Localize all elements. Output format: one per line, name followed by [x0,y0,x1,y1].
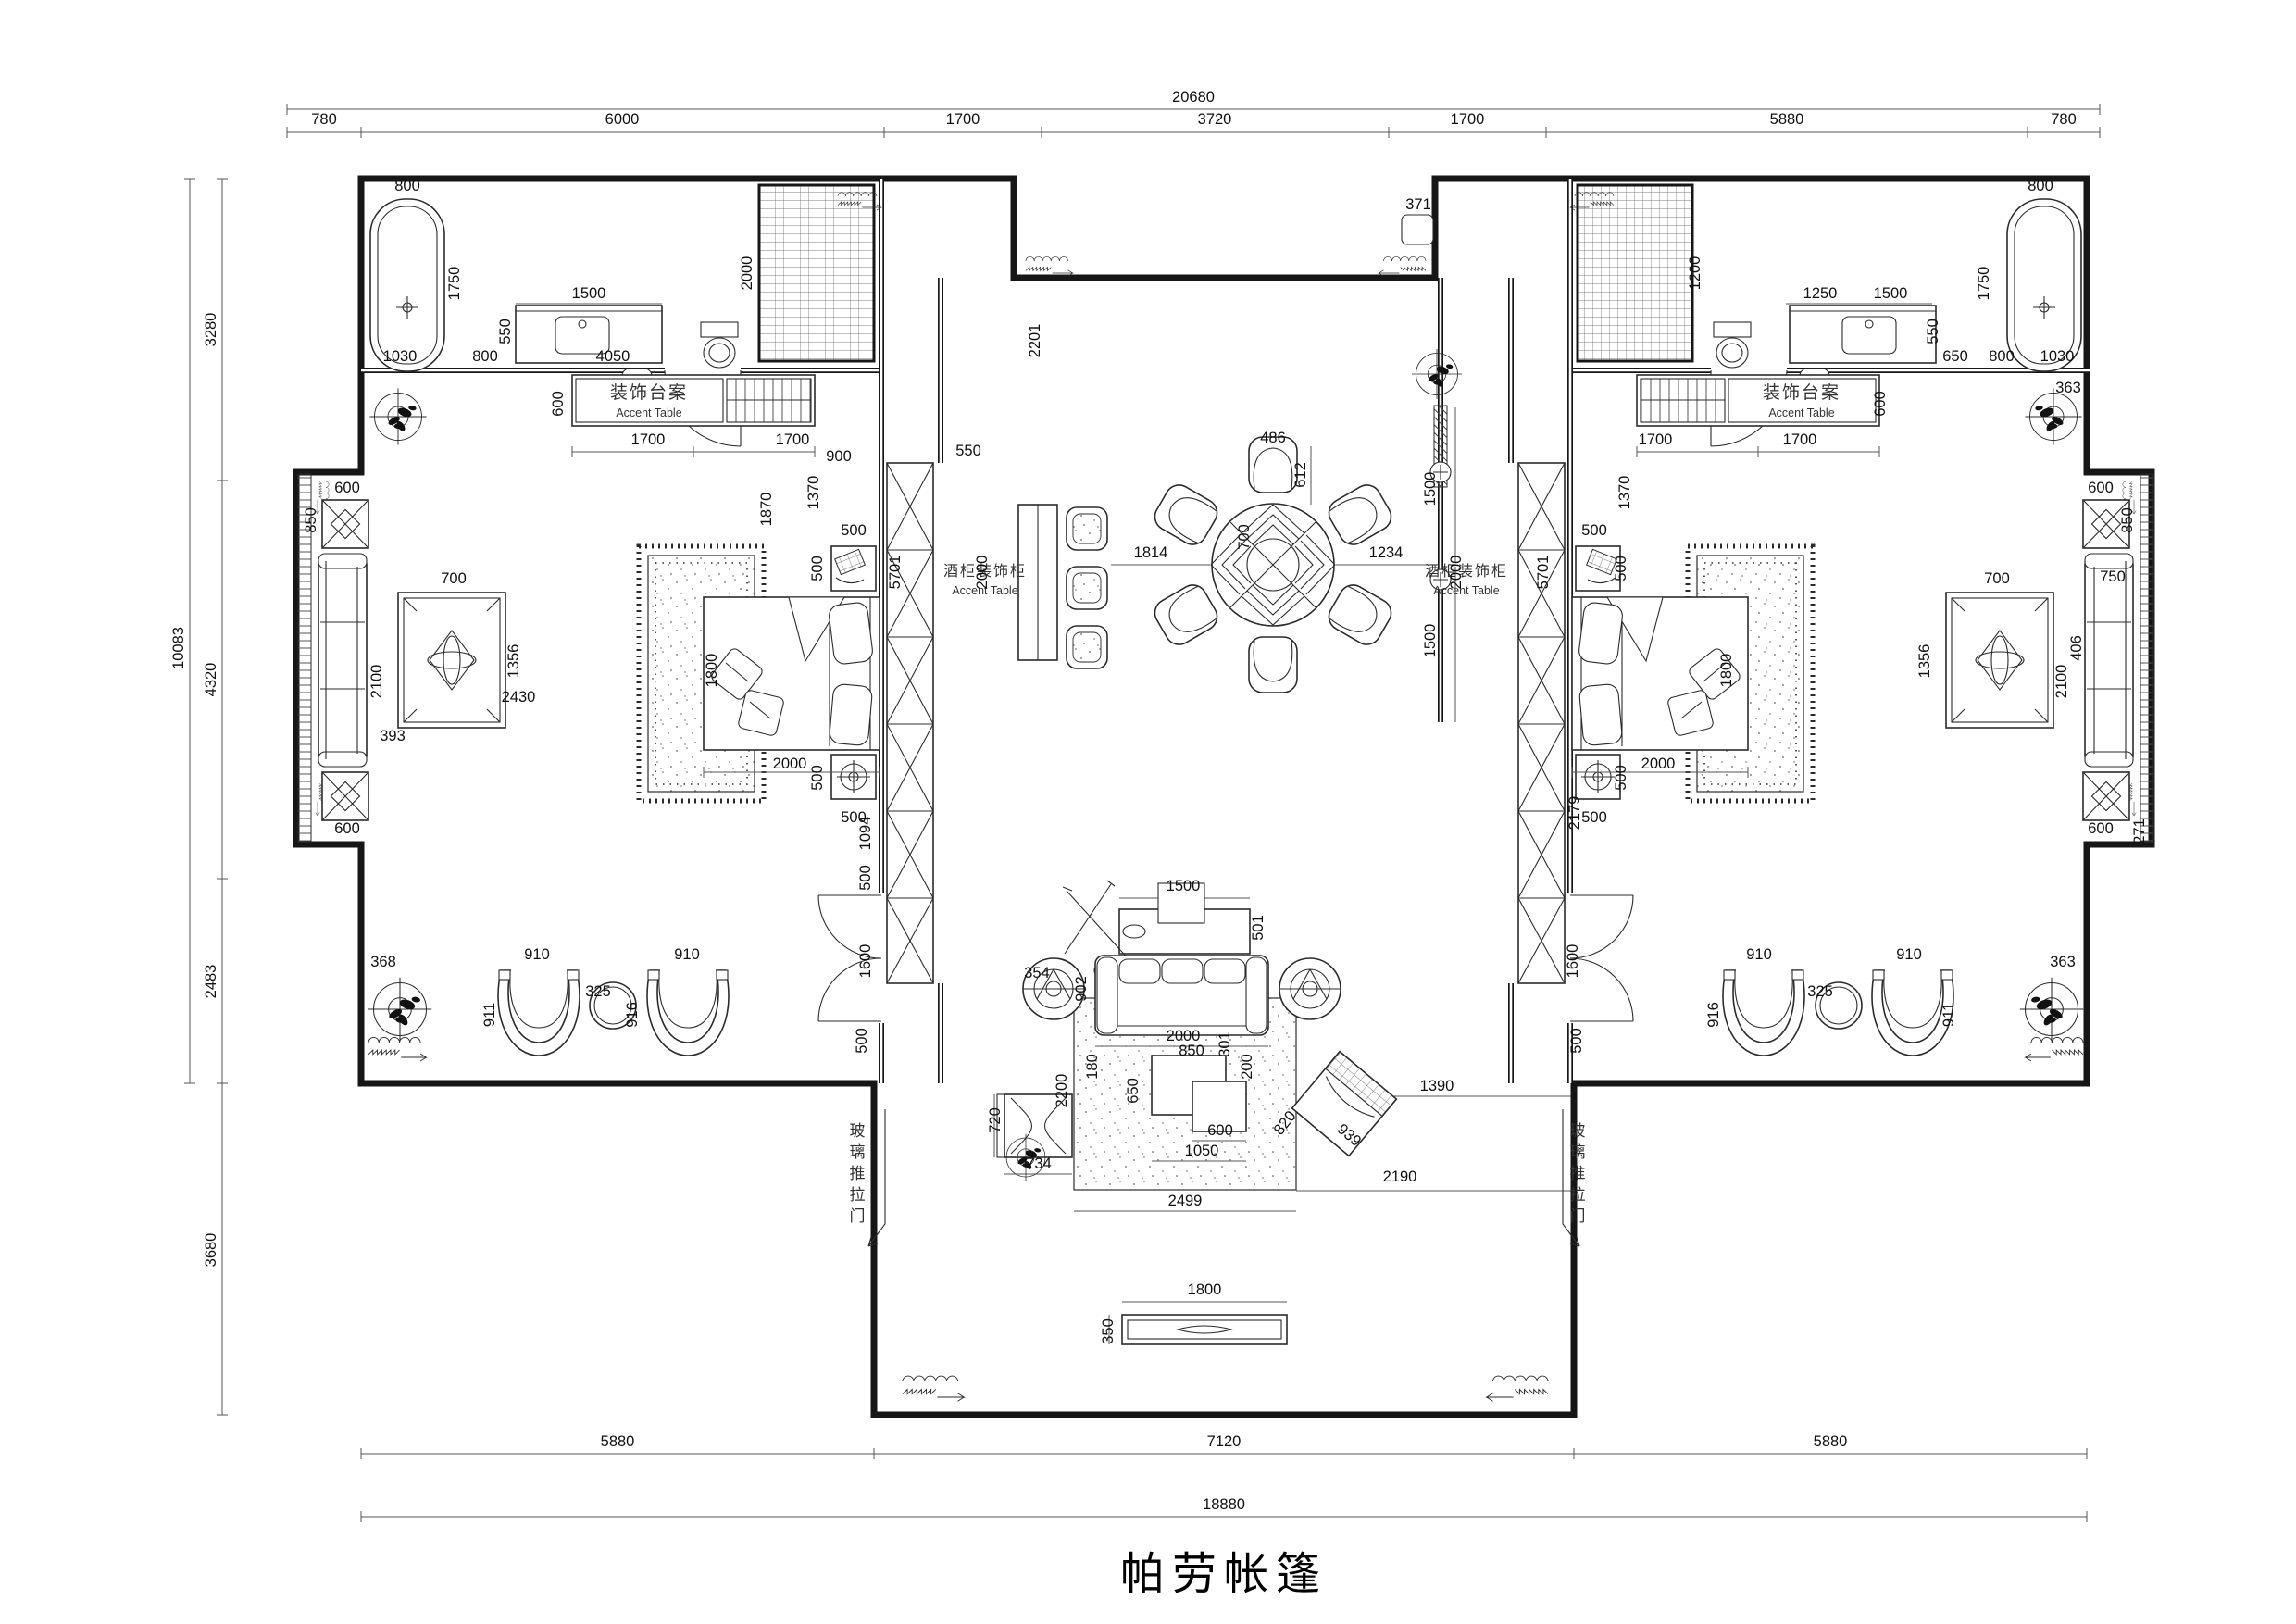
dim-label: 271 [2131,818,2148,844]
dim-label: 1700 [1639,431,1673,448]
dim-label: 350 [1100,1318,1117,1344]
dim-label: 600 [1872,391,1889,417]
small-stool [1402,215,1433,244]
dim-label: 1094 [857,817,874,851]
tv-console [1122,1315,1287,1344]
dim-label: 5880 [1814,1433,1848,1450]
dim-label: 1030 [2040,348,2075,365]
dim-label: 5701 [887,556,904,590]
left-suite [298,179,941,1083]
dim-label: 550 [955,443,981,459]
glass-door-right: 玻璃推拉门 [1563,1109,1585,1246]
dim-label: 1600 [1565,944,1581,979]
dim-label: 2483 [203,965,219,999]
dim-label: 1250 [1803,285,1838,302]
dim-label: 700 [441,570,467,587]
dim-label: 700 [1236,524,1253,550]
dim-label: 2200 [1054,1074,1070,1108]
dim-label: 4320 [203,663,219,697]
wine-cabinet-label-en: Accent Table [1433,584,1499,597]
dim-label: 5880 [601,1433,635,1450]
dim-label: 600 [2088,480,2114,496]
dim-label: 4050 [596,348,630,365]
dim-label: 1500 [1167,878,1201,894]
dim-label: 500 [809,765,826,791]
dim-label: 1356 [505,644,522,679]
dim-label: 910 [1746,946,1772,963]
dim-label: 650 [1125,1078,1142,1104]
dim-label: 800 [394,178,420,194]
dim-label: 500 [809,556,826,581]
drawing-title: 帕劳帐篷 [1120,1550,1328,1599]
dim-label: 2100 [2053,665,2070,699]
dim-label: 700 [1984,570,2010,587]
floor-plan-drawing: 玻璃推拉门 玻璃推拉门 装饰台案 Accent Table 装饰台案 Accen… [0,0,2296,1624]
dining-area [1018,215,1462,693]
dim-label: 1800 [704,654,720,688]
dim-label: 1700 [1783,431,1817,448]
dim-label: 363 [2055,380,2081,396]
right-suite [1511,179,2153,1083]
dim-label: 600 [334,820,360,837]
dining-table [1211,504,1335,626]
dim-label: 3680 [203,1233,219,1268]
dim-label: 2000 [974,556,991,590]
dim-label: 800 [1989,348,2015,365]
dim-label: 1600 [857,944,874,979]
dim-label: 916 [624,1002,641,1028]
dim-label: 910 [1896,946,1922,963]
dim-label: 2000 [773,756,807,772]
dim-label: 910 [674,946,700,963]
dim-label: 1700 [946,111,980,128]
dim-label: 1800 [1188,1281,1222,1298]
dim-label: 301 [1217,1031,1233,1057]
dim-label: 2201 [1027,324,1043,358]
dim-label: 600 [1207,1122,1233,1139]
dim-label: 1370 [805,476,822,510]
dim-label: 910 [524,946,550,963]
dim-label: 550 [1925,319,1941,344]
dim-label: 600 [550,391,567,417]
dim-label: 902 [1073,976,1090,1002]
dim-label: 7120 [1207,1433,1242,1450]
dim-label: 1370 [1616,476,1633,510]
glass-door-label: 玻璃推拉门 [1567,1122,1586,1229]
dim-label: 600 [2088,820,2114,837]
building-shell [296,179,2152,1415]
dim-label: 750 [2100,568,2126,585]
wine-cabinet-label-cn: 酒柜装饰柜 [1425,563,1508,580]
dim-label: 2000 [1448,556,1465,590]
dim-label: 368 [370,954,396,970]
dim-label: 6000 [605,111,640,128]
dim-label: 1200 [1687,256,1703,291]
dim-label: 850 [303,507,319,533]
sofa [1095,956,1268,1035]
dim-label: 3720 [1198,111,1232,128]
dim-label: 2499 [1168,1193,1203,1209]
dim-label: 500 [1613,556,1629,581]
dim-label: 200 [1239,1054,1255,1080]
accent-table-label-cn: 装饰台案 [610,382,688,403]
dim-label: 1814 [1134,544,1168,561]
dim-label: 900 [826,448,852,465]
dim-label: 500 [1568,1028,1585,1054]
dim-label: 406 [2068,635,2085,661]
dim-label: 1500 [1874,285,1908,302]
dim-label: 800 [2028,178,2053,194]
dim-label: 5880 [1770,111,1804,128]
dim-label: 612 [1292,462,1309,488]
dim-label: 501 [1250,915,1267,941]
dim-label: 780 [2051,111,2077,128]
dim-label: 10083 [170,627,187,669]
dim-label: 5701 [1535,556,1552,590]
dim-label: 734 [1026,1156,1052,1172]
accent-table-label-en: Accent Table [616,406,681,419]
dim-label: 911 [481,1003,498,1027]
dim-label: 600 [334,480,360,496]
dim-label: 1870 [758,493,775,527]
dim-label: 500 [1581,522,1607,539]
dim-label: 393 [380,728,406,744]
dim-label: 486 [1260,430,1286,446]
dim-label: 720 [987,1107,1004,1133]
dim-label: 500 [1581,809,1607,826]
dim-label: 650 [1942,348,1968,365]
dim-label: 1500 [572,285,606,302]
dim-label: 2000 [1641,756,1676,772]
dim-label: 500 [854,1028,870,1054]
dim-label: 1800 [1718,654,1735,688]
dim-label: 1750 [446,267,463,301]
dim-label: 1356 [1916,644,1933,679]
dim-label: 1500 [1422,624,1439,658]
dim-label: 500 [1613,765,1629,791]
dim-label: 500 [857,865,874,891]
dim-label: 325 [585,983,611,1000]
dim-label: 325 [1807,983,1833,1000]
dim-label: 2430 [502,689,536,706]
dim-label: 363 [2050,954,2076,970]
dim-label: 1700 [776,431,810,448]
glass-door-left: 玻璃推拉门 [847,1109,886,1246]
dimension-annotations: 2068078060001700372017005880780100833280… [170,89,2148,1513]
dim-label: 2190 [1383,1168,1417,1185]
dim-label: 850 [2119,507,2136,533]
dim-label: 1700 [1451,111,1485,128]
glass-door-label: 玻璃推拉门 [847,1122,866,1229]
dim-label: 800 [472,348,498,365]
dim-label: 916 [1705,1002,1722,1028]
dim-label: 20680 [1172,89,1215,106]
dim-label: 18880 [1203,1496,1245,1513]
living-room: 玻璃推拉门 玻璃推拉门 [847,881,1586,1401]
dim-label: 2000 [739,256,755,291]
dim-label: 1030 [383,348,418,365]
bar-console [1018,505,1057,660]
floor-plan-page: 玻璃推拉门 玻璃推拉门 装饰台案 Accent Table 装饰台案 Accen… [0,0,2296,1624]
dim-label: 500 [841,522,867,539]
dim-label: 550 [497,319,514,344]
dim-label: 354 [1024,965,1050,981]
dim-label: 850 [1179,1043,1204,1059]
dim-label: 1500 [1422,472,1439,506]
dim-label: 1750 [1976,267,1992,301]
dim-label: 2100 [368,665,385,699]
accent-table-label-en: Accent Table [1768,406,1834,419]
dim-label: 780 [311,111,337,128]
dim-label: 1700 [631,431,666,448]
dim-label: 180 [1084,1054,1101,1080]
dim-label: 371 [1405,196,1431,213]
dim-label: 3280 [203,313,219,347]
accent-table-label-cn: 装饰台案 [1763,382,1841,403]
dim-label: 1234 [1369,544,1404,561]
dim-label: 1390 [1420,1078,1454,1094]
dim-label: 911 [1940,1003,1957,1027]
dim-label: 1050 [1185,1143,1219,1159]
